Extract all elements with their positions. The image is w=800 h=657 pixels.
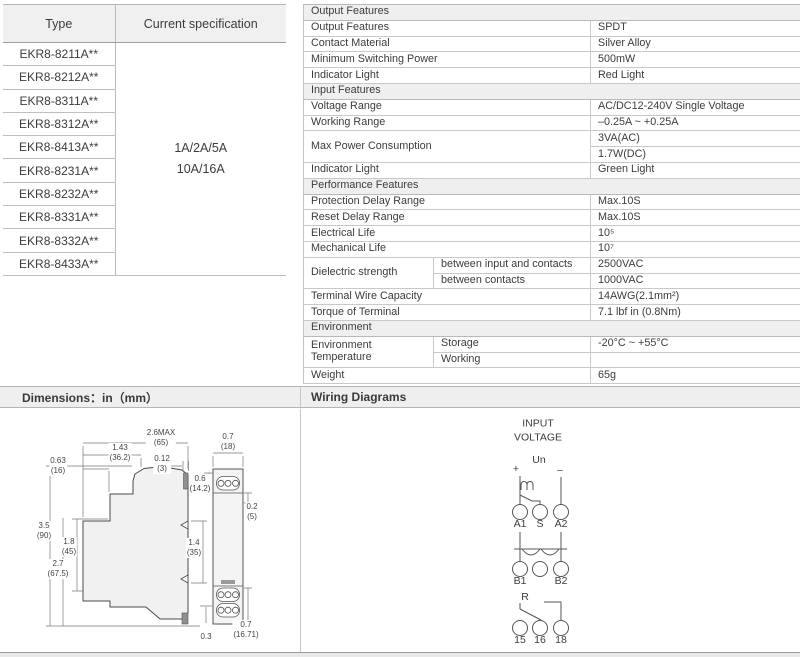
dimension-label: 0.7 (16.71)	[232, 620, 259, 640]
spec-sublabel: between contacts	[434, 273, 591, 289]
terminal-label-a2: A2	[555, 518, 568, 532]
wiring-diagram	[301, 409, 800, 652]
type-cell: EKR8-8413A**	[3, 136, 115, 159]
type-cell: EKR8-8232A**	[3, 182, 115, 205]
spec-value: 65g	[591, 368, 800, 384]
spec-section-row: Environment	[304, 320, 800, 336]
type-cell: EKR8-8231A**	[3, 159, 115, 182]
spec-label: Torque of Terminal	[304, 305, 591, 321]
type-table: Type Current specification EKR8-8211A** …	[3, 4, 286, 276]
spec-label: Electrical Life	[304, 226, 591, 242]
dimension-label: 0.3	[199, 632, 212, 642]
spec-value: 14AWG(2.1mm²)	[591, 289, 800, 305]
spec-label: Mechanical Life	[304, 241, 591, 257]
spec-label: Indicator Light	[304, 162, 591, 178]
section-header: Output Features	[304, 5, 800, 21]
type-cell: EKR8-8212A**	[3, 66, 115, 89]
spec-row: Weight65g	[304, 368, 800, 384]
minus-label: –	[557, 464, 563, 478]
spec-row: Output FeaturesSPDT	[304, 20, 800, 36]
spec-label: Weight	[304, 368, 591, 384]
spec-label: Dielectric strength	[304, 257, 434, 289]
type-cell: EKR8-8312A**	[3, 112, 115, 135]
spec-value: Max.10S	[591, 194, 800, 210]
spec-value: SPDT	[591, 20, 800, 36]
spec-label: Voltage Range	[304, 99, 591, 115]
spec-sublabel: Working	[434, 352, 591, 368]
type-row: EKR8-8211A** 1A/2A/5A 10A/16A	[3, 43, 286, 66]
spec-label: Contact Material	[304, 36, 591, 52]
dimension-label: 2.6MAX (65)	[146, 428, 176, 448]
dimension-label: 0.2 (5)	[245, 502, 258, 522]
type-cell: EKR8-8331A**	[3, 206, 115, 229]
dimension-label: 0.6 (14.2)	[189, 474, 212, 494]
spec-value: 3VA(AC)	[591, 131, 800, 147]
spec-value: Green Light	[591, 162, 800, 178]
dimension-label: 3.5 (90)	[36, 521, 52, 541]
spec-value: 10⁷	[591, 241, 800, 257]
spec-row: Working Range–0.25A ~ +0.25A	[304, 115, 800, 131]
spec-label: Output Features	[304, 20, 591, 36]
plus-label: +	[513, 463, 519, 477]
spec-value: 7.1 lbf in (0.8Nm)	[591, 305, 800, 321]
dimensions-panel: 2.6MAX (65) 1.43 (36.2) 0.63 (16) 0.12 (…	[0, 409, 300, 652]
spec-row: Dielectric strengthbetween input and con…	[304, 257, 800, 273]
spec-label: Reset Delay Range	[304, 210, 591, 226]
spec-section-row: Output Features	[304, 5, 800, 21]
current-spec-line: 10A/16A	[117, 159, 286, 180]
spec-section-row: Performance Features	[304, 178, 800, 194]
spec-label: Max Power Consumption	[304, 131, 591, 163]
section-header: Performance Features	[304, 178, 800, 194]
current-spec-line: 1A/2A/5A	[117, 138, 286, 159]
un-label: Un	[532, 454, 545, 468]
type-cell: EKR8-8332A**	[3, 229, 115, 252]
page-bottom-edge	[0, 652, 800, 657]
spec-label: Environment Temperature	[304, 336, 434, 368]
input-voltage-label: INPUT VOLTAGE	[514, 417, 562, 444]
section-header: Environment	[304, 320, 800, 336]
spec-sublabel: between input and contacts	[434, 257, 591, 273]
type-table-header-row: Type Current specification	[3, 5, 286, 43]
dimension-label: 1.4 (35)	[186, 538, 202, 558]
dimensions-title: Dimensions：in（mm）	[22, 389, 158, 406]
dimension-label: 0.7 (18)	[220, 432, 236, 452]
dimension-label: 2.7 (67.5)	[47, 559, 70, 579]
type-column-header: Type	[3, 5, 115, 43]
terminal-label-18: 18	[555, 634, 567, 648]
dimension-label: 0.12 (3)	[153, 454, 171, 474]
dimension-label: 1.8 (45)	[61, 537, 77, 557]
spec-row: Reset Delay RangeMax.10S	[304, 210, 800, 226]
terminal-label-s: S	[536, 518, 543, 532]
spec-value: Silver Alloy	[591, 36, 800, 52]
terminal-label-16: 16	[534, 634, 546, 648]
dimensions-section-header: Dimensions：in（mm）	[0, 386, 300, 408]
spec-value	[591, 352, 800, 368]
spec-row: Mechanical Life10⁷	[304, 241, 800, 257]
relay-label-r: R	[521, 591, 529, 605]
spec-label: Working Range	[304, 115, 591, 131]
wiring-section-header: Wiring Diagrams	[300, 386, 800, 408]
current-spec-column-header: Current specification	[115, 5, 286, 43]
spec-row: Indicator LightRed Light	[304, 68, 800, 84]
type-cell: EKR8-8211A**	[3, 43, 115, 66]
spec-value: AC/DC12-240V Single Voltage	[591, 99, 800, 115]
spec-value: 1.7W(DC)	[591, 147, 800, 163]
spec-value: –0.25A ~ +0.25A	[591, 115, 800, 131]
spec-label: Minimum Switching Power	[304, 52, 591, 68]
spec-row: Electrical Life10⁵	[304, 226, 800, 242]
spec-label: Indicator Light	[304, 68, 591, 84]
spec-row: Terminal Wire Capacity14AWG(2.1mm²)	[304, 289, 800, 305]
spec-row: Environment TemperatureStorage-20°C ~ +5…	[304, 336, 800, 352]
spec-row: Protection Delay RangeMax.10S	[304, 194, 800, 210]
spec-value: 2500VAC	[591, 257, 800, 273]
spec-value: 1000VAC	[591, 273, 800, 289]
spec-table: Output Features Output FeaturesSPDT Cont…	[303, 4, 800, 384]
spec-label: Protection Delay Range	[304, 194, 591, 210]
terminal-label-15: 15	[514, 634, 526, 648]
spec-row: Max Power Consumption3VA(AC)	[304, 131, 800, 147]
spec-row: Indicator LightGreen Light	[304, 162, 800, 178]
spec-label: Terminal Wire Capacity	[304, 289, 591, 305]
spec-row: Minimum Switching Power500mW	[304, 52, 800, 68]
spec-row: Torque of Terminal7.1 lbf in (0.8Nm)	[304, 305, 800, 321]
spec-value: -20°C ~ +55°C	[591, 336, 800, 352]
terminal-label-b2: B2	[555, 575, 568, 589]
datasheet-page: { "colors": {"section_bg": "#efefef", "b…	[0, 0, 800, 657]
spec-value: Max.10S	[591, 210, 800, 226]
dimension-label: 1.43 (36.2)	[109, 443, 132, 463]
spec-value: Red Light	[591, 68, 800, 84]
spec-value: 10⁵	[591, 226, 800, 242]
terminal-label-b1: B1	[514, 575, 527, 589]
dimension-label: 0.63 (16)	[49, 456, 67, 476]
spec-row: Voltage RangeAC/DC12-240V Single Voltage	[304, 99, 800, 115]
wiring-title: Wiring Diagrams	[311, 390, 406, 404]
terminal-label-a1: A1	[514, 518, 527, 532]
spec-section-row: Input Features	[304, 83, 800, 99]
type-cell: EKR8-8311A**	[3, 89, 115, 112]
section-header: Input Features	[304, 83, 800, 99]
spec-value: 500mW	[591, 52, 800, 68]
current-spec-cell: 1A/2A/5A 10A/16A	[115, 43, 286, 276]
type-cell: EKR8-8433A**	[3, 252, 115, 275]
wiring-panel: INPUT VOLTAGE Un + – A1 S A2 B1 B2 R 15 …	[300, 409, 800, 652]
spec-row: Contact MaterialSilver Alloy	[304, 36, 800, 52]
spec-sublabel: Storage	[434, 336, 591, 352]
